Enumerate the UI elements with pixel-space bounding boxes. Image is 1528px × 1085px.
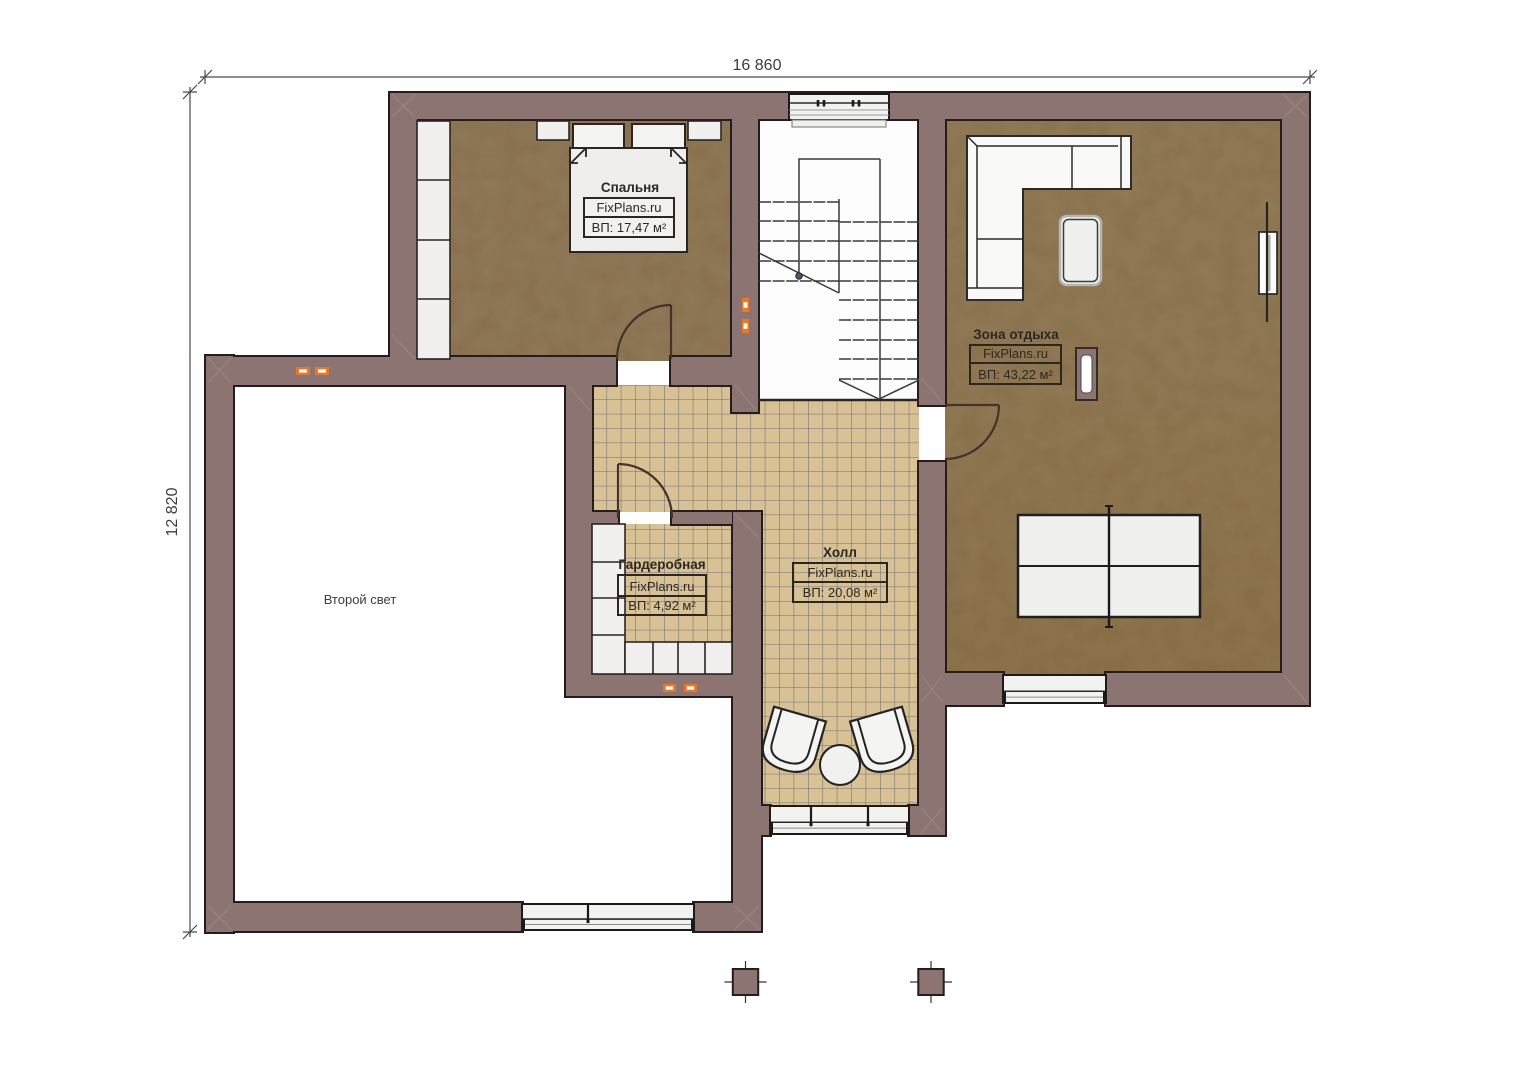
svg-text:Второй свет: Второй свет (324, 592, 397, 607)
svg-text:12 820: 12 820 (164, 487, 181, 536)
svg-text:FixPlans.ru: FixPlans.ru (983, 346, 1048, 361)
svg-text:Гардеробная: Гардеробная (618, 557, 705, 572)
svg-text:FixPlans.ru: FixPlans.ru (629, 579, 694, 594)
svg-text:ВП: 43,22 м²: ВП: 43,22 м² (978, 367, 1053, 382)
svg-text:ВП: 17,47 м²: ВП: 17,47 м² (592, 220, 667, 235)
svg-text:ВП: 4,92 м²: ВП: 4,92 м² (628, 598, 696, 613)
svg-text:Холл: Холл (823, 545, 857, 560)
svg-text:Зона отдыха: Зона отдыха (973, 327, 1059, 342)
svg-text:FixPlans.ru: FixPlans.ru (807, 565, 872, 580)
svg-text:ВП: 20,08 м²: ВП: 20,08 м² (803, 585, 878, 600)
svg-text:Спальня: Спальня (601, 180, 659, 195)
svg-text:FixPlans.ru: FixPlans.ru (596, 200, 661, 215)
svg-text:16 860: 16 860 (733, 57, 782, 74)
